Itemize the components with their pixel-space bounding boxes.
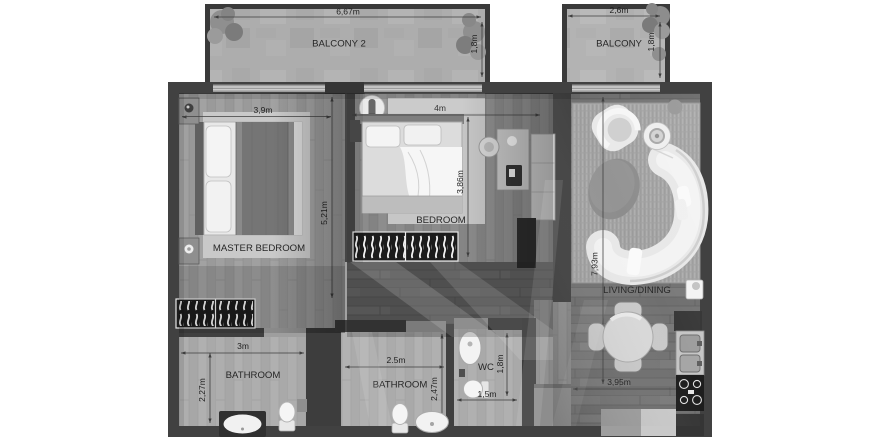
svg-text:2,27m: 2,27m <box>197 378 207 402</box>
svg-text:1,8m: 1,8m <box>469 35 479 54</box>
svg-text:3,9m: 3,9m <box>254 105 273 115</box>
svg-text:BEDROOM: BEDROOM <box>416 215 466 226</box>
svg-text:1,8m: 1,8m <box>495 355 505 374</box>
svg-text:2,47m: 2,47m <box>429 377 439 401</box>
svg-text:3m: 3m <box>237 341 249 351</box>
svg-text:1,8m: 1,8m <box>646 33 656 52</box>
svg-text:BALCONY 2: BALCONY 2 <box>312 39 366 50</box>
svg-text:2,6m: 2,6m <box>610 5 629 15</box>
svg-text:BATHROOM: BATHROOM <box>226 370 281 381</box>
svg-text:6,67m: 6,67m <box>336 7 360 17</box>
svg-text:1,5m: 1,5m <box>478 389 497 399</box>
svg-text:BALCONY: BALCONY <box>596 39 642 50</box>
svg-text:2.5m: 2.5m <box>387 355 406 365</box>
svg-text:WC: WC <box>478 362 494 373</box>
